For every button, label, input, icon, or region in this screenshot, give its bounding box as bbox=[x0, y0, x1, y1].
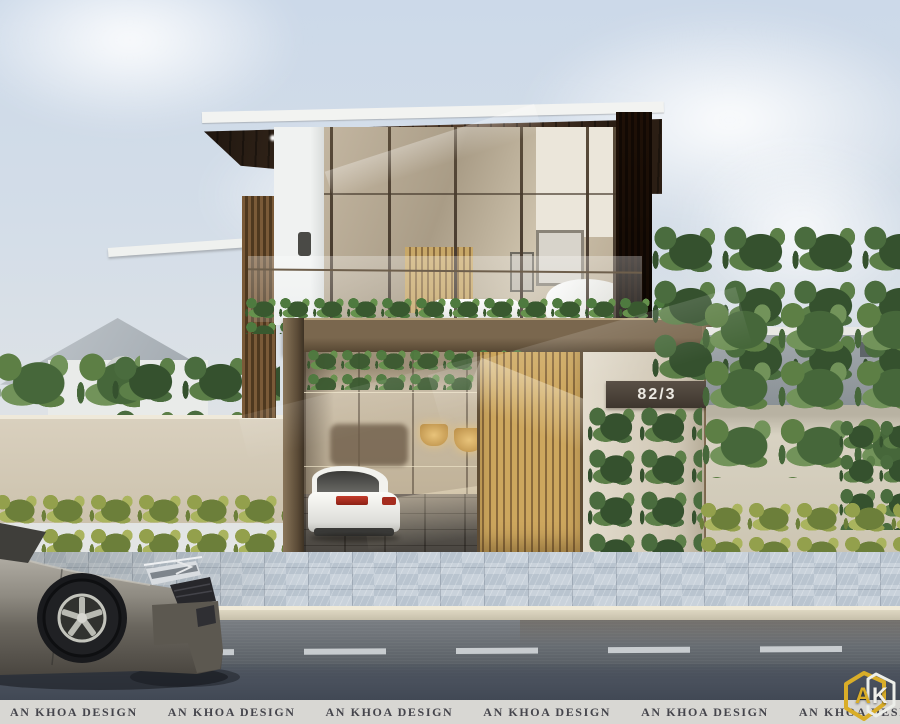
hedge-shadow-on-road bbox=[520, 620, 900, 646]
car-taillight bbox=[382, 497, 396, 505]
foreground-car bbox=[0, 505, 240, 705]
pendant-lamp bbox=[420, 424, 448, 446]
gate-pillar-left bbox=[283, 318, 304, 562]
house-number: 82/3 bbox=[637, 386, 676, 404]
watermark-text: AN KHOA DESIGN bbox=[10, 705, 138, 720]
car-rear-window bbox=[317, 471, 379, 493]
watermark-text: AN KHOA DESIGN bbox=[168, 705, 296, 720]
watermark-text: AN KHOA DESIGN bbox=[483, 705, 611, 720]
watermark-text: AN KHOA DESIGN bbox=[326, 705, 454, 720]
villa-render-scene: 82/3 bbox=[0, 0, 900, 724]
interior-furniture-silhouette bbox=[330, 424, 408, 466]
slat-gate-door bbox=[477, 352, 583, 562]
garage-white-car bbox=[308, 466, 400, 542]
car-windshield bbox=[0, 523, 46, 563]
logo-letter-a: A bbox=[855, 685, 871, 707]
interior-bright-wall bbox=[536, 127, 618, 237]
plants-by-gate bbox=[586, 404, 702, 562]
awning-left bbox=[108, 238, 250, 257]
watermark-text: AN KHOA DESIGN bbox=[641, 705, 769, 720]
ak-logo-icon: A K bbox=[842, 670, 898, 722]
logo-letter-k: K bbox=[872, 685, 888, 707]
car-hub-cap bbox=[77, 613, 87, 623]
watermark-band: AN KHOA DESIGN AN KHOA DESIGN AN KHOA DE… bbox=[0, 700, 900, 724]
car-taillight bbox=[336, 496, 368, 505]
wall-lamp bbox=[298, 232, 311, 256]
